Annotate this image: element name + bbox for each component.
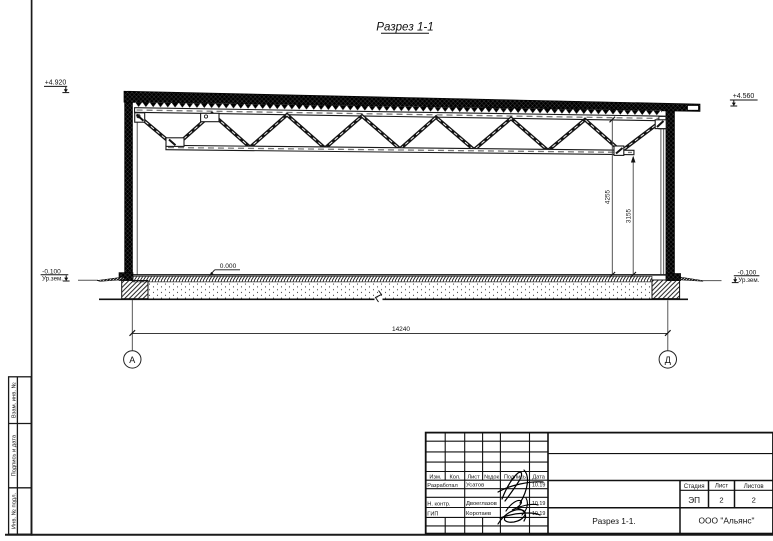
svg-text:№док: №док bbox=[484, 474, 499, 480]
svg-text:ООО "Альянс": ООО "Альянс" bbox=[699, 515, 755, 525]
svg-text:+4.920: +4.920 bbox=[45, 79, 67, 86]
svg-text:Д: Д bbox=[665, 355, 671, 365]
svg-text:Лист: Лист bbox=[715, 482, 728, 489]
svg-text:Лист: Лист bbox=[468, 474, 481, 480]
svg-text:Дата: Дата bbox=[533, 474, 546, 480]
svg-text:Листов: Листов bbox=[744, 483, 764, 490]
svg-text:Ур.зем.: Ур.зем. bbox=[42, 275, 63, 282]
svg-text:ЭП: ЭП bbox=[688, 496, 700, 505]
svg-text:Коротаев: Коротаев bbox=[466, 511, 491, 517]
svg-text:Стадия: Стадия bbox=[684, 483, 705, 490]
svg-text:+4.560: +4.560 bbox=[733, 93, 755, 100]
svg-text:Разработал: Разработал bbox=[427, 483, 457, 489]
svg-text:Изм.: Изм. bbox=[429, 474, 441, 480]
svg-text:2: 2 bbox=[719, 495, 723, 504]
svg-text:10.19: 10.19 bbox=[532, 483, 546, 489]
svg-text:3155: 3155 bbox=[626, 208, 633, 223]
svg-text:2: 2 bbox=[752, 495, 756, 504]
svg-text:Подпись и дата: Подпись и дата bbox=[11, 434, 17, 476]
svg-text:Н. контр.: Н. контр. bbox=[427, 502, 451, 508]
svg-text:14240: 14240 bbox=[392, 326, 410, 333]
svg-text:0.000: 0.000 bbox=[220, 263, 237, 270]
svg-text:Разрез 1-1: Разрез 1-1 bbox=[376, 21, 433, 34]
svg-text:Разрез 1-1.: Разрез 1-1. bbox=[592, 516, 635, 526]
svg-text:4255: 4255 bbox=[605, 189, 612, 204]
svg-text:Кол.: Кол. bbox=[449, 474, 461, 480]
svg-text:Взам. инв. №: Взам. инв. № bbox=[11, 382, 17, 418]
svg-text:А: А bbox=[129, 355, 135, 365]
svg-text:ГИП: ГИП bbox=[427, 512, 438, 518]
svg-text:Ур.зем.: Ур.зем. bbox=[738, 277, 759, 284]
svg-text:Усатов: Усатов bbox=[466, 482, 484, 488]
svg-text:Двоеглазов: Двоеглазов bbox=[466, 501, 497, 507]
svg-text:Инв. № подл.: Инв. № подл. bbox=[11, 493, 17, 529]
